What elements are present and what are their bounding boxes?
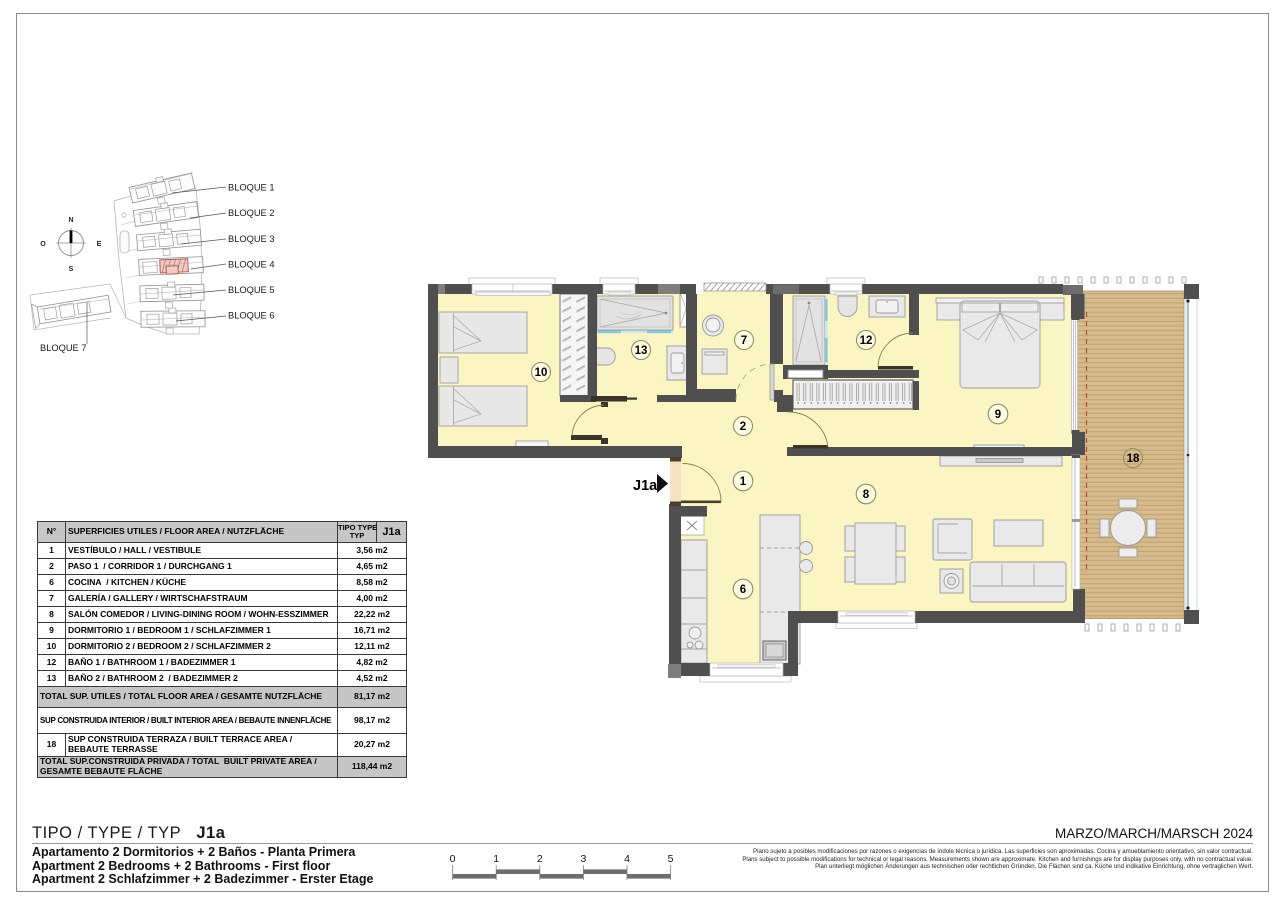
svg-text:10: 10 bbox=[535, 367, 548, 379]
svg-text:O: O bbox=[40, 241, 46, 248]
svg-text:BLOQUE 4: BLOQUE 4 bbox=[228, 260, 275, 270]
svg-text:0: 0 bbox=[450, 853, 456, 865]
svg-text:2: 2 bbox=[537, 853, 543, 865]
svg-text:BLOQUE 3: BLOQUE 3 bbox=[228, 234, 275, 244]
svg-text:1: 1 bbox=[740, 476, 747, 488]
svg-text:BLOQUE 1: BLOQUE 1 bbox=[228, 183, 275, 193]
svg-text:2: 2 bbox=[740, 421, 746, 433]
svg-text:BLOQUE 5: BLOQUE 5 bbox=[228, 285, 275, 295]
svg-text:5: 5 bbox=[668, 853, 674, 865]
svg-text:9: 9 bbox=[995, 409, 1001, 421]
svg-text:7: 7 bbox=[741, 335, 747, 347]
svg-text:3: 3 bbox=[580, 853, 586, 865]
svg-text:BLOQUE 2: BLOQUE 2 bbox=[228, 208, 275, 218]
svg-text:8: 8 bbox=[863, 489, 870, 501]
svg-text:E: E bbox=[97, 241, 102, 248]
svg-text:BLOQUE 7: BLOQUE 7 bbox=[40, 343, 87, 353]
svg-text:1: 1 bbox=[493, 853, 499, 865]
svg-text:12: 12 bbox=[860, 335, 873, 347]
svg-text:6: 6 bbox=[740, 584, 746, 596]
svg-text:13: 13 bbox=[635, 345, 648, 357]
svg-text:N: N bbox=[68, 217, 73, 224]
svg-text:S: S bbox=[69, 266, 74, 273]
svg-text:18: 18 bbox=[1127, 453, 1140, 465]
svg-text:BLOQUE 6: BLOQUE 6 bbox=[228, 311, 275, 321]
svg-text:4: 4 bbox=[624, 853, 630, 865]
svg-text:J1a: J1a bbox=[633, 478, 658, 494]
